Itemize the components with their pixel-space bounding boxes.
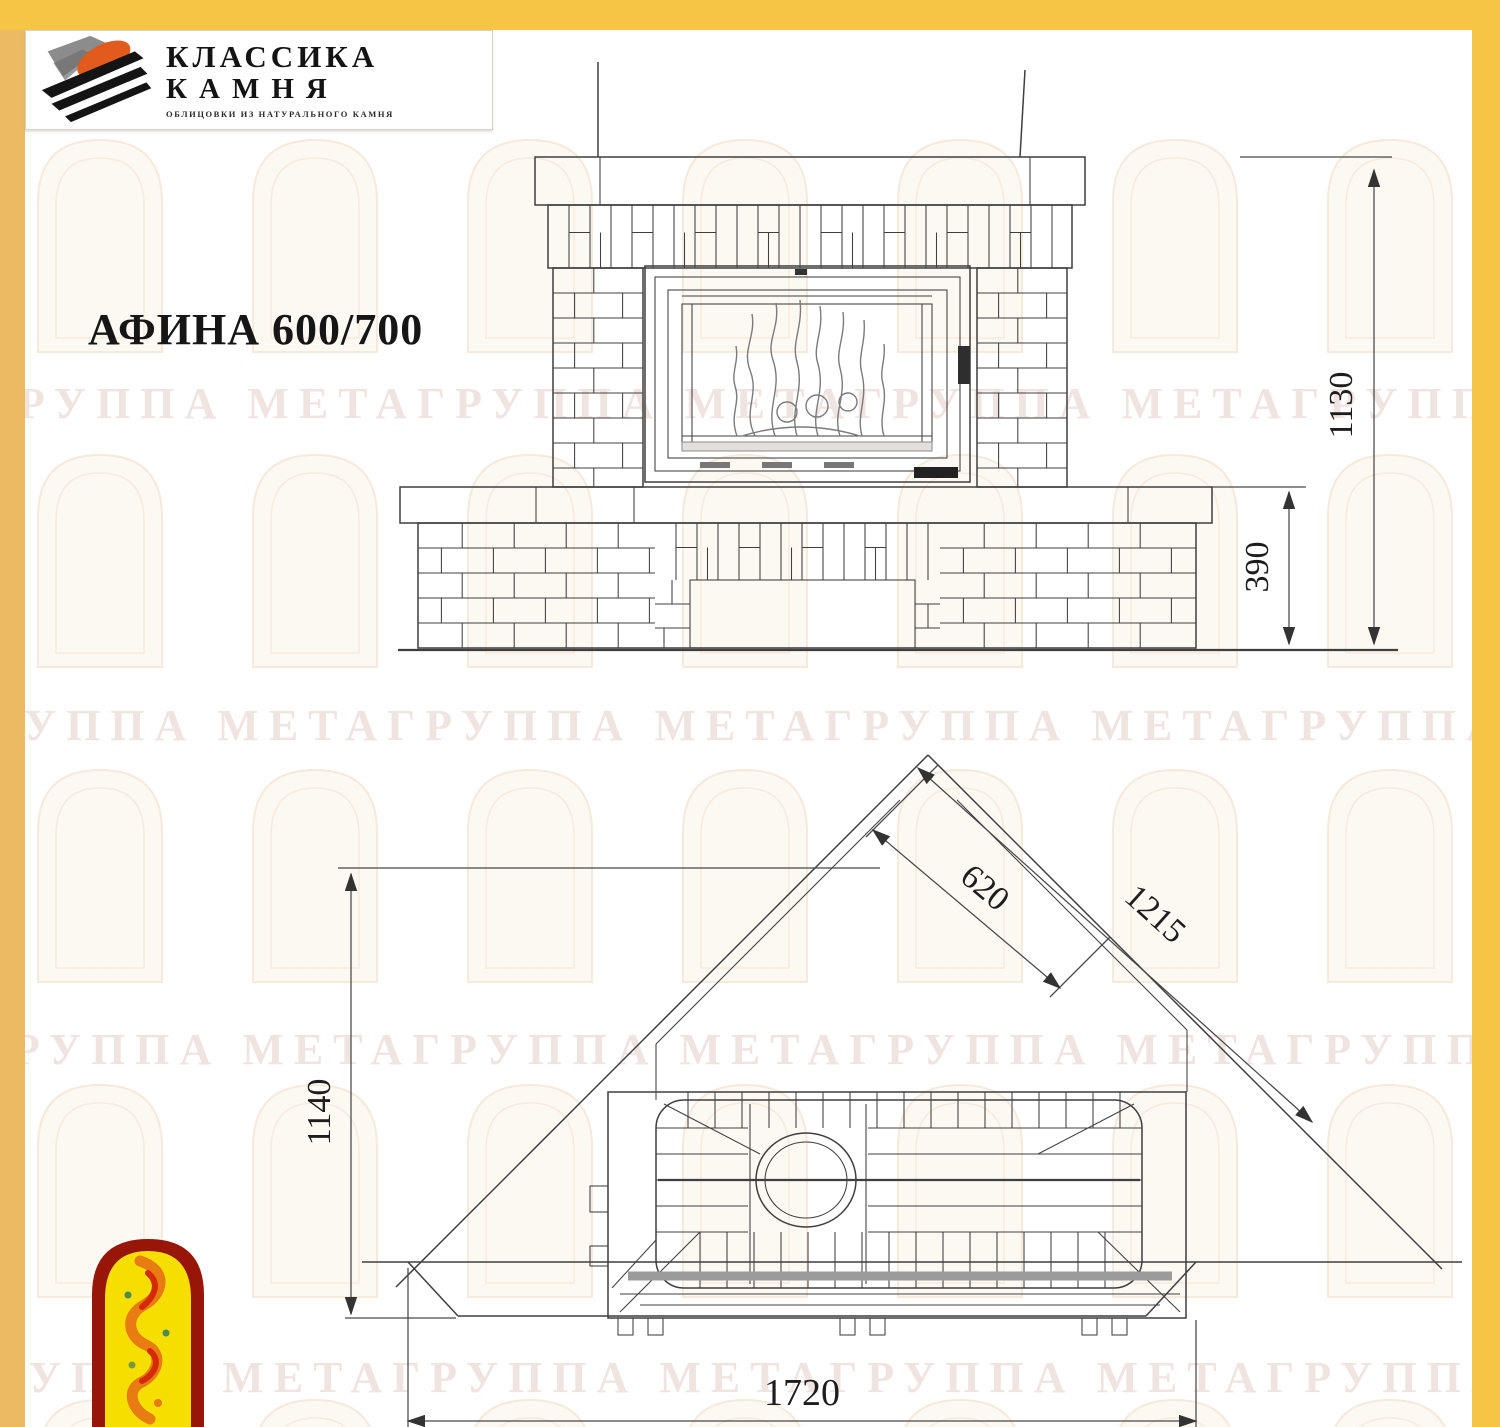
model-title: АФИНА 600/700 xyxy=(88,304,423,355)
company-logo: КЛАССИКА КАМНЯ ОБЛИЦОВКИ ИЗ НАТУРАЛЬНОГО… xyxy=(25,30,493,130)
watermark-row: ГРУППА МЕТАГРУППА МЕТАГРУППА МЕТАГРУППА … xyxy=(0,1025,1500,1074)
company-tagline: ОБЛИЦОВКИ ИЗ НАТУРАЛЬНОГО КАМНЯ xyxy=(166,110,394,119)
company-logo-icon xyxy=(32,34,164,126)
dim-height-label: 1130 xyxy=(1323,372,1360,439)
company-name-line1: КЛАССИКА xyxy=(166,41,394,72)
page: ГРУППА МЕТАГРУППА МЕТАГРУППА МЕТАГРУППА … xyxy=(0,0,1500,1427)
dim-base-height-label: 390 xyxy=(1239,542,1276,593)
watermark-row: ГРУППА МЕТАГРУППА МЕТАГРУППА МЕТАГРУППА … xyxy=(0,1353,1500,1402)
technical-drawing: ГРУППА МЕТАГРУППА МЕТАГРУППА МЕТАГРУППА … xyxy=(0,0,1500,1427)
dim-width-label: 1720 xyxy=(764,1372,840,1414)
watermark-row: ГРУППА МЕТАГРУППА МЕТАГРУППА МЕТАГРУППА … xyxy=(0,701,1500,750)
frame-border-left xyxy=(0,30,25,1427)
company-name-line2: КАМНЯ xyxy=(166,75,394,104)
dim-depth-label: 1140 xyxy=(301,1079,338,1146)
firebox-plan xyxy=(590,1092,1186,1335)
brand-mark-icon xyxy=(88,1233,208,1427)
frame-border-top xyxy=(0,0,1500,30)
frame-border-right xyxy=(1472,30,1500,1427)
